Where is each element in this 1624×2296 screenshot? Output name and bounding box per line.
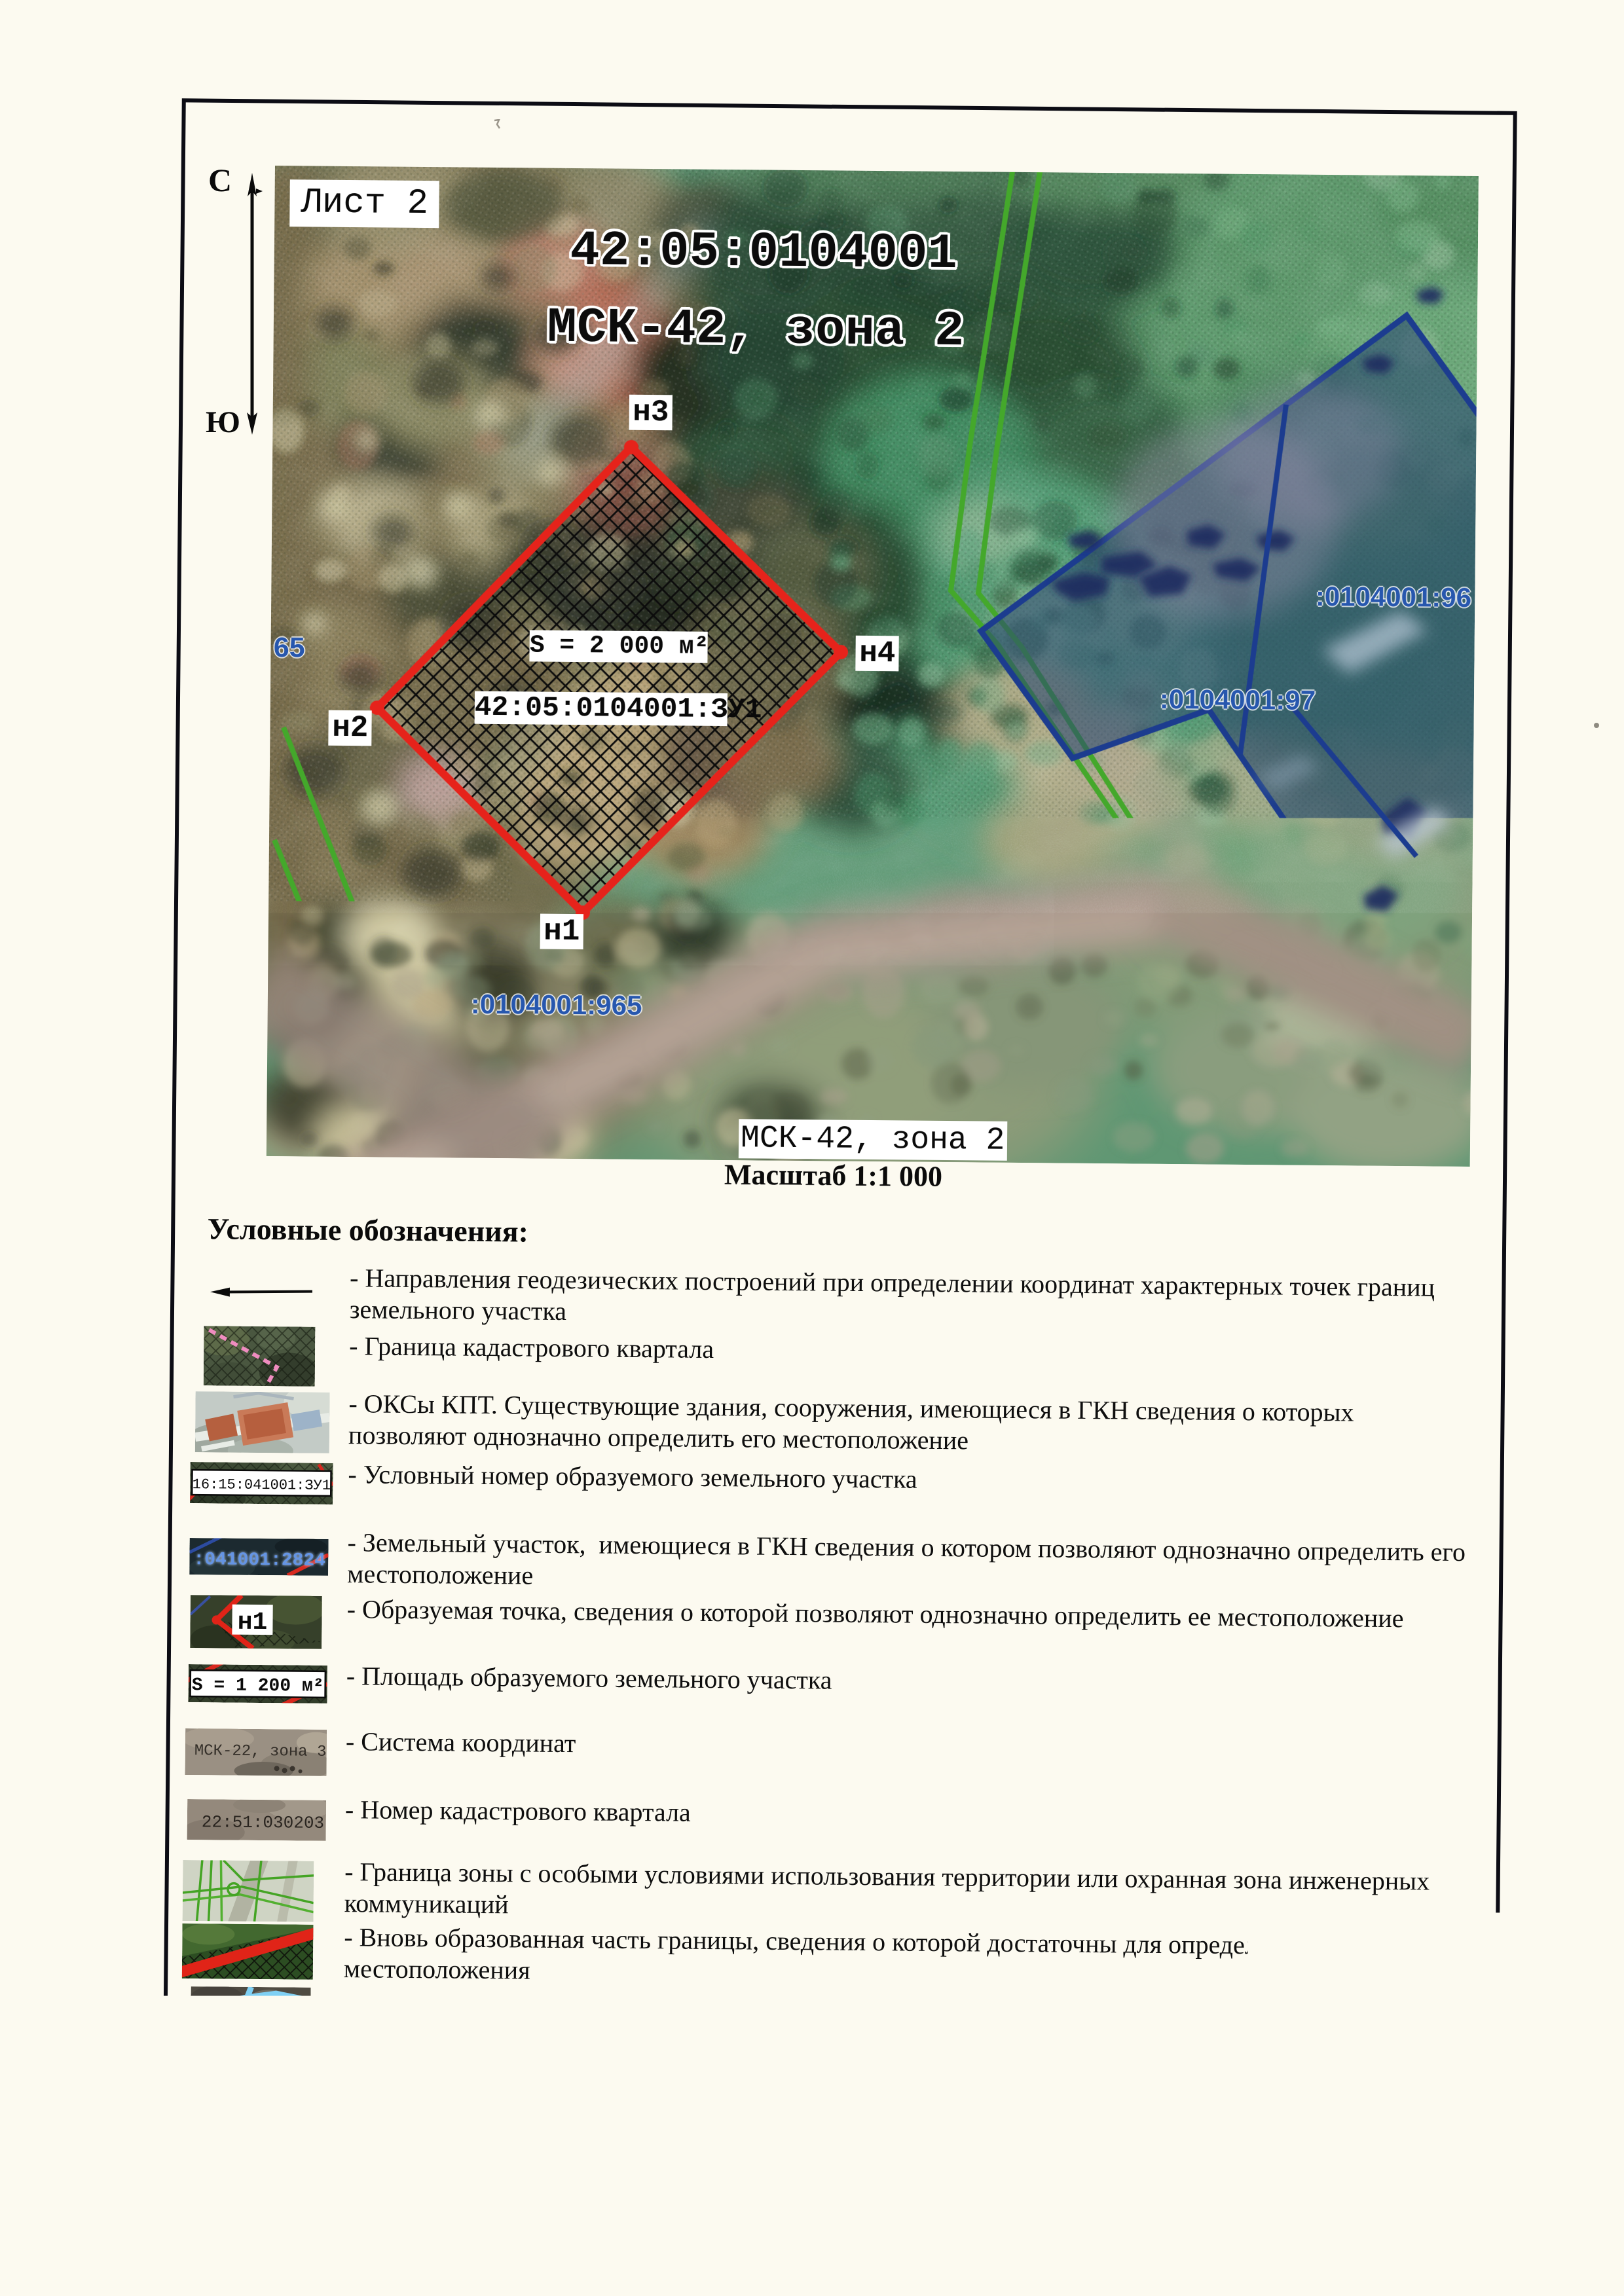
svg-text:22:51:030203: 22:51:030203: [202, 1812, 324, 1833]
svg-text:16:15:041001:ЗУ1: 16:15:041001:ЗУ1: [193, 1476, 331, 1494]
svg-text:S = 1 200 м²: S = 1 200 м²: [192, 1675, 324, 1697]
svg-text:МСК-22, зона 3: МСК-22, зона 3: [194, 1742, 327, 1761]
svg-text::041001:2824: :041001:2824: [193, 1550, 325, 1571]
svg-text:н1: н1: [238, 1609, 268, 1637]
